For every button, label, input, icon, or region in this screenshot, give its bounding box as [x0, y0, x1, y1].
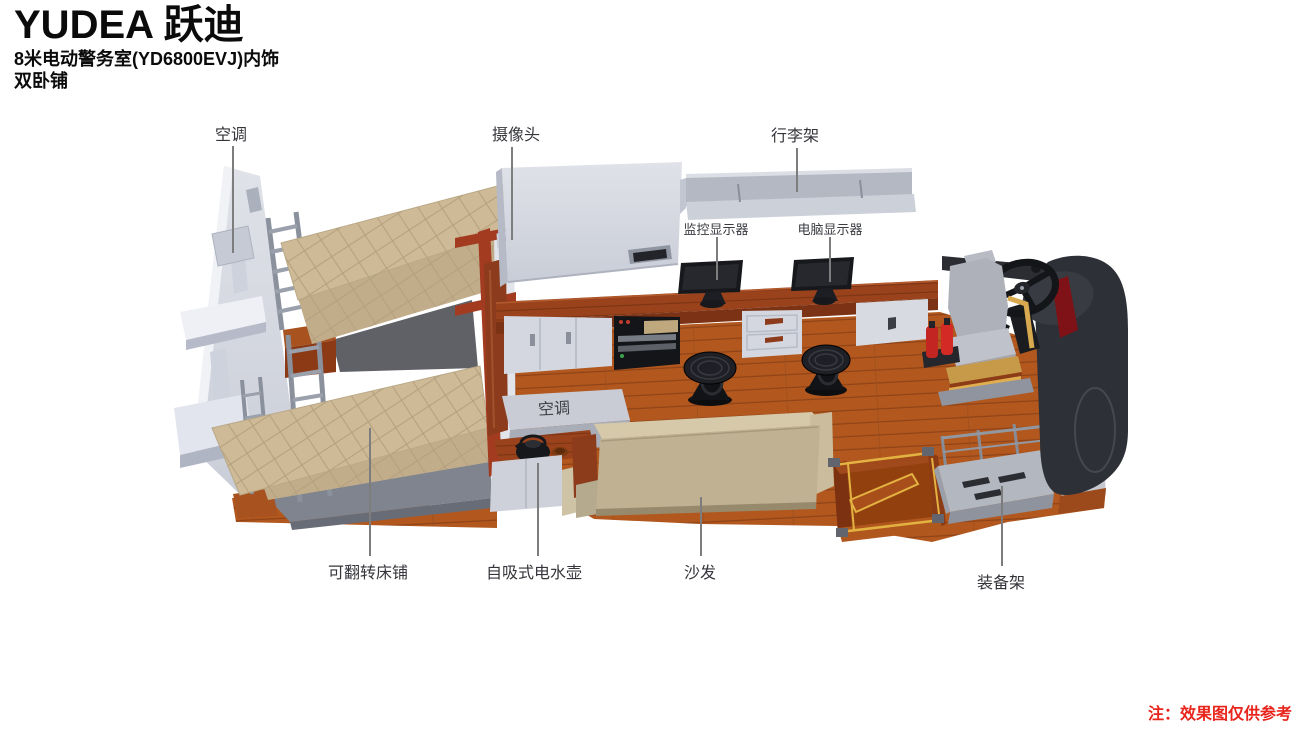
sofa-shape [572, 412, 834, 518]
leader-monitor-surveillance [716, 237, 718, 280]
stool-1 [684, 352, 736, 406]
header: YUDEA 跃迪 8米电动警务室(YD6800EVJ)内饰 双卧铺 [14, 4, 279, 92]
bunk-bed-module [174, 166, 505, 530]
leader-monitor-computer [829, 237, 831, 282]
leader-ac-top [232, 146, 234, 253]
label-ac-top: 空调 [215, 121, 247, 145]
label-sofa: 沙发 [684, 559, 716, 583]
leader-equipment-rack [1001, 486, 1003, 566]
leader-camera [511, 147, 513, 240]
brand-logo: YUDEA 跃迪 [14, 4, 279, 46]
page: YUDEA 跃迪 8米电动警务室(YD6800EVJ)内饰 双卧铺 [0, 0, 1304, 733]
label-equipment-rack: 装备架 [977, 569, 1025, 593]
page-subtitle: 双卧铺 [14, 71, 279, 93]
leader-flip-bed [369, 428, 371, 556]
label-camera: 摄像头 [492, 121, 540, 145]
footnote: 注：效果图仅供参考 [1148, 700, 1292, 724]
overhead-cabinet [496, 162, 682, 287]
leader-kettle [537, 463, 539, 556]
leader-sofa [700, 497, 702, 556]
label-monitor-computer: 电脑显示器 [797, 219, 862, 238]
label-monitor-surveillance: 监控显示器 [683, 219, 748, 238]
label-luggage-rack: 行李架 [771, 122, 819, 146]
desk-cabinet [504, 316, 612, 374]
server-rack [614, 316, 680, 370]
page-title: 8米电动警务室(YD6800EVJ)内饰 [14, 49, 279, 71]
right-desk-cabinet [856, 299, 928, 346]
label-kettle: 自吸式电水壶 [486, 559, 582, 583]
drawer-unit [742, 310, 802, 358]
luggage-rack-shape [680, 168, 916, 220]
label-flip-bed: 可翻转床铺 [328, 559, 408, 583]
stool-2 [802, 345, 850, 396]
label-ac-mid: 空调 [537, 394, 570, 420]
leader-luggage-rack [796, 148, 798, 192]
stairwell [828, 447, 946, 542]
vehicle-interior-render [0, 0, 1304, 733]
